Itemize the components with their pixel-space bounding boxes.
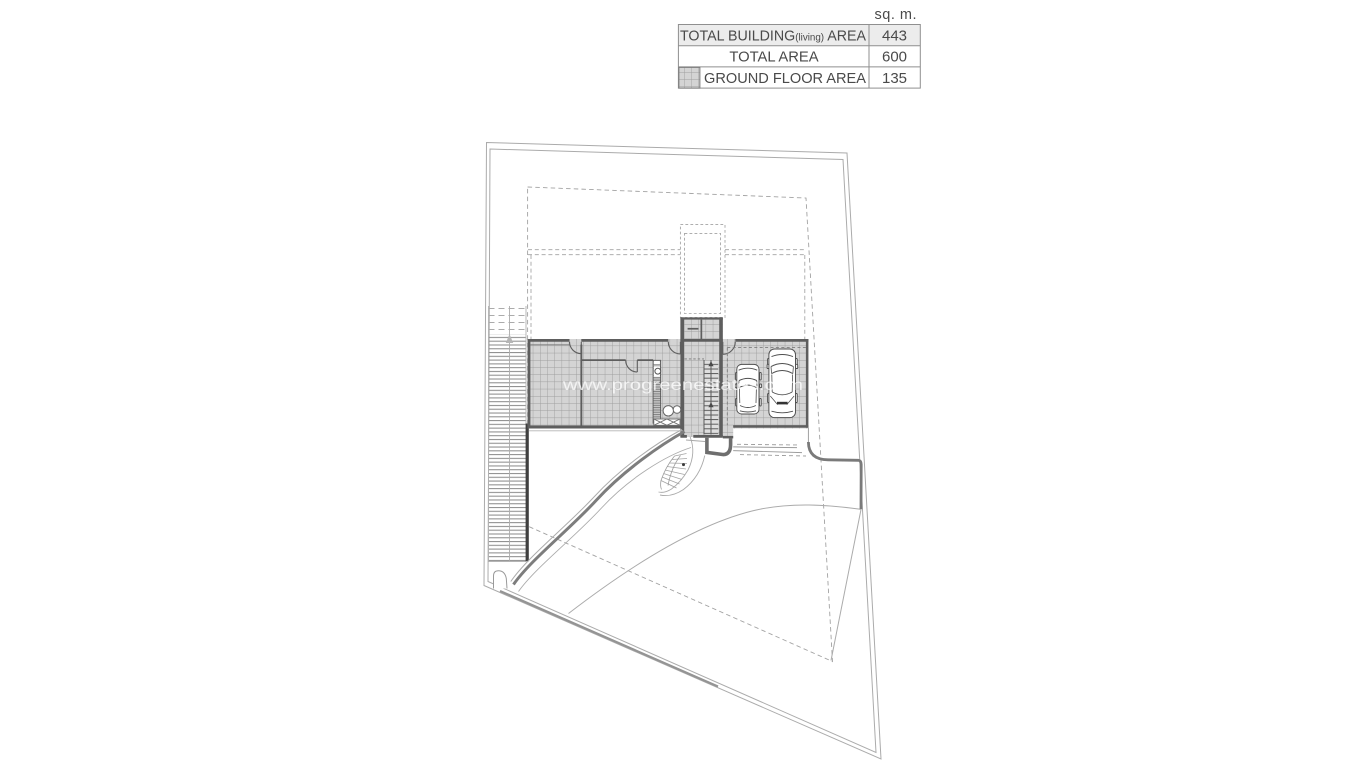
svg-text:TOTAL AREA: TOTAL AREA bbox=[729, 50, 818, 66]
svg-text:TOTAL BUILDING(living) AREA: TOTAL BUILDING(living) AREA bbox=[680, 29, 866, 45]
svg-text:443: 443 bbox=[882, 28, 907, 45]
svg-text:GROUND FLOOR AREA: GROUND FLOOR AREA bbox=[704, 71, 866, 87]
svg-text:sq. m.: sq. m. bbox=[875, 7, 917, 23]
svg-text:600: 600 bbox=[882, 49, 907, 66]
svg-text:135: 135 bbox=[882, 70, 907, 87]
svg-text:www.progreenestates.com: www.progreenestates.com bbox=[562, 377, 803, 394]
